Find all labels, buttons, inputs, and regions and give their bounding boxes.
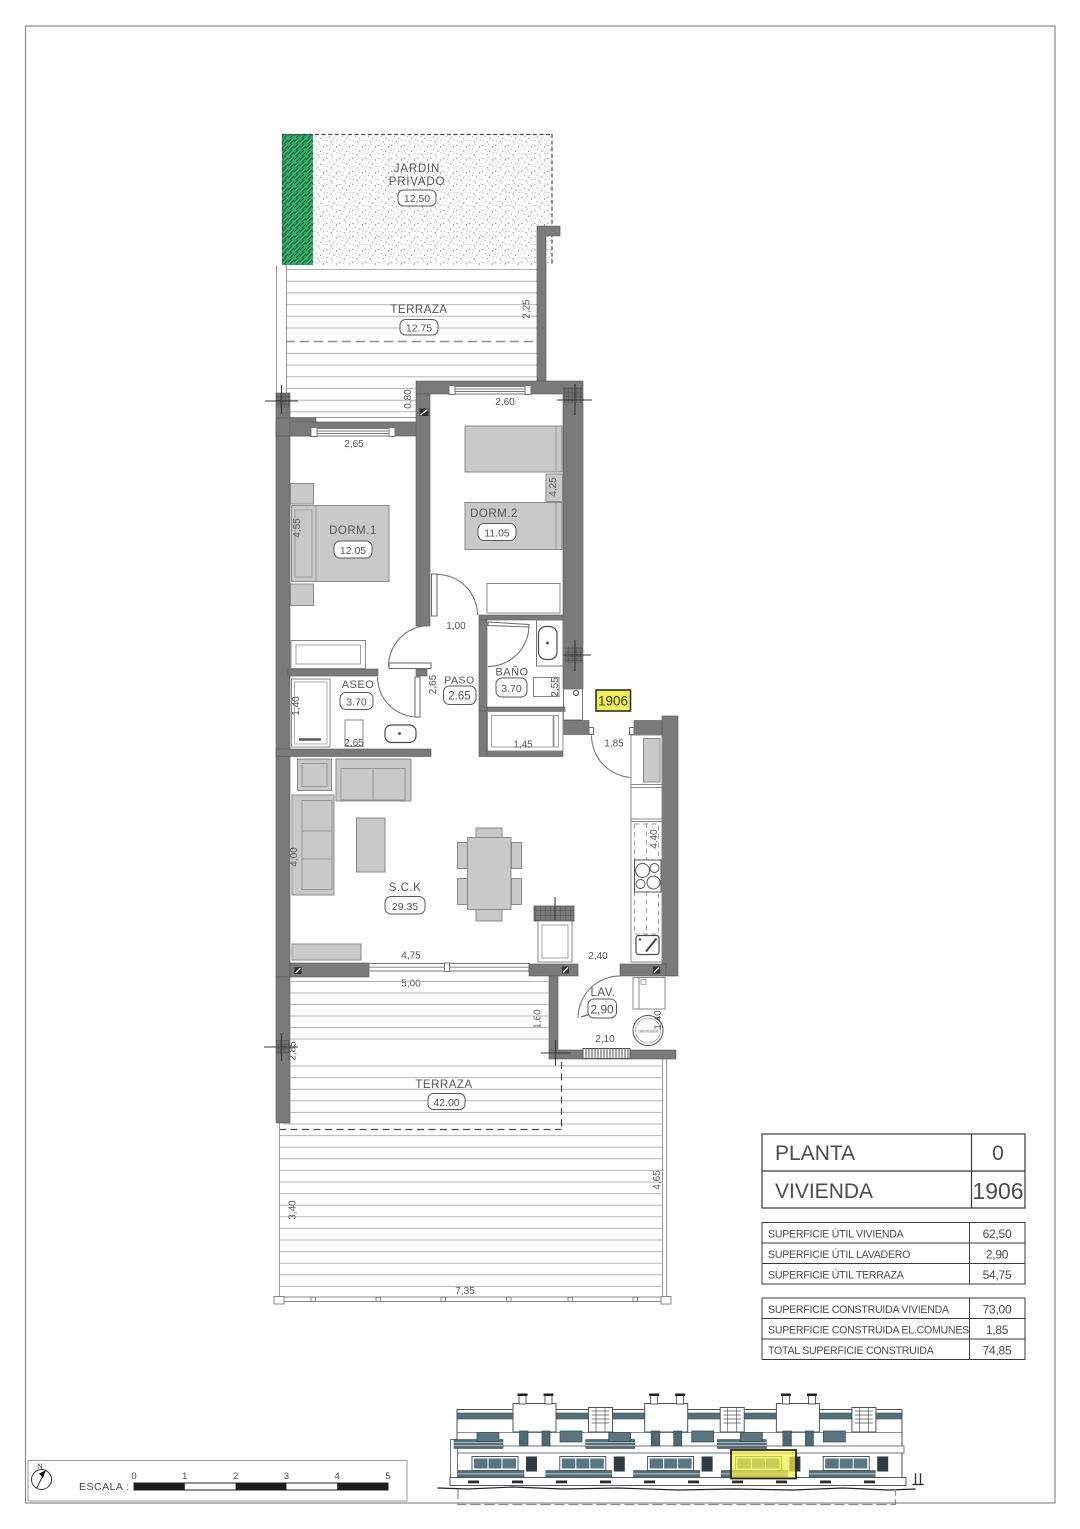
svg-text:2,90: 2,90 [986,1248,1009,1262]
svg-text:5: 5 [385,1471,390,1482]
svg-text:54,75: 54,75 [983,1268,1012,1282]
svg-text:1,85: 1,85 [604,739,624,750]
svg-text:TOTAL SUPERFICIE CONSTRUIDA: TOTAL SUPERFICIE CONSTRUIDA [768,1345,935,1357]
svg-text:2,90: 2,90 [590,1003,614,1017]
svg-text:1,00: 1,00 [446,621,466,632]
svg-text:2,25: 2,25 [522,299,533,319]
svg-text:73,00: 73,00 [983,1303,1012,1317]
svg-text:2,65: 2,65 [428,674,439,694]
svg-text:1,40: 1,40 [291,696,302,716]
svg-text:0: 0 [131,1471,136,1482]
svg-text:LAV.: LAV. [590,987,615,999]
svg-text:1,85: 1,85 [986,1323,1009,1337]
svg-text:DORM.1: DORM.1 [329,525,377,537]
svg-text:7,35: 7,35 [455,1286,475,1297]
svg-text:2,85: 2,85 [288,1041,299,1061]
svg-text:29.35: 29.35 [392,901,418,913]
svg-text:1906: 1906 [972,1178,1023,1204]
svg-text:1,40: 1,40 [653,1010,664,1030]
svg-text:SUPERFICIE ÚTIL LAVADERO: SUPERFICIE ÚTIL LAVADERO [768,1248,910,1261]
svg-text:2,10: 2,10 [595,1034,615,1045]
svg-text:SUPERFICIE ÚTIL VIVIENDA: SUPERFICIE ÚTIL VIVIENDA [768,1228,905,1241]
svg-text:12,50: 12,50 [404,193,430,205]
svg-text:4,25: 4,25 [548,477,559,497]
svg-text:3.70: 3.70 [346,697,367,709]
svg-text:ASEO: ASEO [342,679,375,691]
svg-text:VIVIENDA: VIVIENDA [775,1180,873,1203]
svg-text:2,65: 2,65 [344,439,364,450]
svg-text:4,75: 4,75 [401,951,421,962]
svg-text:2,55: 2,55 [550,677,561,697]
svg-text:SUPERFICIE CONSTRUIDA VIVIENDA: SUPERFICIE CONSTRUIDA VIVIENDA [768,1304,950,1316]
svg-text:TERRAZA: TERRAZA [415,1079,472,1091]
svg-text:12.05: 12.05 [340,545,366,557]
svg-text:4,65: 4,65 [652,1170,663,1190]
svg-text:4: 4 [335,1471,340,1482]
svg-text:0,80: 0,80 [403,389,414,409]
svg-text:S.C.K: S.C.K [389,882,422,894]
svg-text:3.70: 3.70 [501,683,522,695]
svg-text:62,50: 62,50 [983,1227,1012,1241]
svg-text:12.75: 12.75 [406,323,432,335]
svg-text:TERRAZA: TERRAZA [390,304,447,316]
svg-text:42.00: 42.00 [433,1097,459,1109]
svg-text:2,40: 2,40 [588,951,608,962]
svg-text:3: 3 [284,1471,289,1482]
svg-text:PASO: PASO [444,675,474,687]
svg-text:4,40: 4,40 [649,829,660,849]
svg-text:5,00: 5,00 [401,979,421,990]
svg-text:1,60: 1,60 [533,1009,544,1029]
svg-text:SUPERFICIE ÚTIL TERRAZA: SUPERFICIE ÚTIL TERRAZA [768,1269,905,1282]
svg-text:2.65: 2.65 [448,691,470,703]
svg-text:2,60: 2,60 [495,397,515,408]
svg-text:4,00: 4,00 [289,847,300,867]
svg-text:74,85: 74,85 [983,1344,1012,1358]
svg-text:ESCALA :: ESCALA : [79,1481,130,1493]
svg-text:BAÑO: BAÑO [495,666,528,679]
svg-text:2,65: 2,65 [344,738,364,749]
svg-text:11.05: 11.05 [484,528,510,540]
svg-text:PLANTA: PLANTA [775,1142,855,1165]
svg-text:0: 0 [992,1142,1004,1165]
svg-text:2: 2 [233,1471,238,1482]
svg-text:1,45: 1,45 [513,740,533,751]
svg-text:PRIVADO: PRIVADO [389,176,446,188]
svg-text:DORM.2: DORM.2 [470,508,518,520]
svg-text:1906: 1906 [598,694,628,709]
svg-text:SUPERFICIE CONSTRUIDA EL.COMUN: SUPERFICIE CONSTRUIDA EL.COMUNES [768,1325,969,1337]
svg-text:JARDIN: JARDIN [394,163,440,175]
svg-text:1: 1 [182,1471,187,1482]
svg-text:4,55: 4,55 [292,518,303,538]
svg-text:3,40: 3,40 [288,1200,299,1220]
